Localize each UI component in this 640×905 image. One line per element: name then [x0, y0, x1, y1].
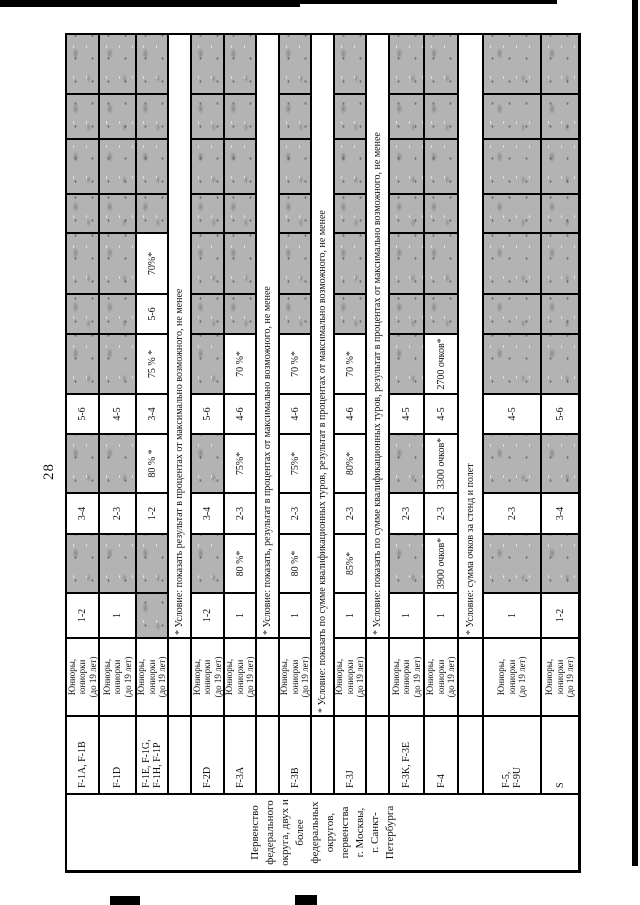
value-cell-f3j-6: 70 %* — [335, 335, 365, 393]
value-cell-s-1: 1-2 — [542, 594, 578, 637]
value-cell-f4-3: 2-3 — [425, 494, 457, 533]
value-cell-f1e-8: 70%* — [137, 234, 167, 293]
value-cell-f1e-7: 5-6 — [137, 295, 167, 333]
model-class-label: F-3A — [235, 717, 246, 788]
shaded-cell-s-4 — [542, 435, 578, 492]
shaded-cell-f1d-8 — [100, 234, 135, 293]
age-group-line: (до 19 лет) — [88, 657, 98, 698]
tournament-level-line: Первенство — [248, 805, 263, 860]
value-cell-f3j-5: 4-6 — [335, 395, 365, 433]
shaded-cell-f3b-11 — [280, 95, 310, 138]
age-group-line: (до 19 лет) — [245, 657, 255, 698]
shaded-cell-f3a-7 — [225, 295, 255, 333]
model-class-label: F-4 — [436, 717, 447, 788]
shaded-cell-f2d-10 — [192, 140, 223, 193]
age-group-line: юниорки — [112, 660, 123, 695]
model-class-cell-f3j: F-3J — [335, 717, 365, 793]
shaded-cell-f3k-4 — [390, 435, 423, 492]
value-cell-f3a-6: 70 %* — [225, 335, 255, 393]
age-group-cell-f4: Юниоры,юниорки(до 19 лет) — [425, 639, 457, 715]
age-group-line: (до 19 лет) — [565, 657, 576, 698]
note-cell-note4: * Условие: показать по сумме квалификаци… — [367, 35, 388, 637]
value-cell-f5-5: 4-5 — [484, 395, 540, 433]
age-group-cell-f1d: Юниоры,юниорки(до 19 лет) — [100, 639, 135, 715]
age-group-line: Юниоры, — [102, 659, 113, 695]
shaded-cell-f5-7 — [484, 295, 540, 333]
age-group-line: Юниоры, — [335, 659, 345, 695]
shaded-cell-f2d-11 — [192, 95, 223, 138]
model-class-cell-f3k: F-3K, F-3E — [390, 717, 423, 793]
tournament-level-line: г. Санкт- — [368, 812, 383, 853]
shaded-cell-f3a-8 — [225, 234, 255, 293]
note-row-class-cell-note5 — [459, 717, 482, 793]
shaded-cell-f1d-7 — [100, 295, 135, 333]
value-cell-f2d-5: 5-6 — [192, 395, 223, 433]
shaded-cell-f5-2 — [484, 535, 540, 592]
shaded-cell-f1a-12 — [67, 35, 98, 93]
age-group-line: Юниоры, — [425, 659, 436, 695]
model-class-label: F-1D — [112, 717, 123, 788]
value-cell-f3a-2: 80 %* — [225, 535, 255, 592]
age-group-cell-s: Юниоры,юниорки(до 19 лет) — [542, 639, 578, 715]
shaded-cell-s-2 — [542, 535, 578, 592]
model-class-label: F-1E, F-1G, — [141, 717, 152, 788]
shaded-cell-f3k-8 — [390, 234, 423, 293]
value-cell-f1e-6: 75 % * — [137, 335, 167, 393]
note-row-class-cell-note2 — [257, 717, 278, 793]
shaded-cell-s-8 — [542, 234, 578, 293]
shaded-cell-f1e-2 — [137, 535, 167, 592]
scan-edge-top-left — [0, 0, 300, 7]
shaded-cell-s-7 — [542, 295, 578, 333]
shaded-cell-f5-8 — [484, 234, 540, 293]
shaded-cell-f1d-11 — [100, 95, 135, 138]
shaded-cell-f3b-12 — [280, 35, 310, 93]
value-cell-f3j-3: 2-3 — [335, 494, 365, 533]
model-class-label: F-1A, F-1B — [77, 717, 88, 788]
value-cell-f3a-1: 1 — [225, 594, 255, 637]
shaded-cell-f3k-6 — [390, 335, 423, 393]
note-row-class-cell-note1 — [169, 717, 190, 793]
shaded-cell-f1d-9 — [100, 195, 135, 232]
model-class-label: F-3K, F-3E — [401, 717, 412, 788]
age-group-cell-f5: Юниоры,юниорки(до 19 лет) — [484, 639, 540, 715]
tournament-level-line: первенства — [338, 807, 353, 859]
shaded-cell-f1a-4 — [67, 435, 98, 492]
shaded-cell-f1d-4 — [100, 435, 135, 492]
model-class-cell-f5: F-5,F-9U — [484, 717, 540, 793]
shaded-cell-f3b-10 — [280, 140, 310, 193]
scan-edge-right — [632, 0, 638, 866]
age-group-line: Юниоры, — [192, 659, 202, 695]
value-cell-f4-4: 3300 очков* — [425, 435, 457, 492]
age-group-line: юниорки — [147, 660, 158, 695]
age-group-line: юниорки — [507, 660, 518, 695]
shaded-cell-f4-12 — [425, 35, 457, 93]
note-row-age-cell-note1 — [169, 639, 190, 715]
shaded-cell-f5-11 — [484, 95, 540, 138]
shaded-cell-f3j-11 — [335, 95, 365, 138]
model-class-label: F-3B — [290, 717, 301, 788]
shaded-cell-f2d-7 — [192, 295, 223, 333]
shaded-cell-f3a-11 — [225, 95, 255, 138]
shaded-cell-f3j-10 — [335, 140, 365, 193]
age-group-cell-f3a: Юниоры,юниорки(до 19 лет) — [225, 639, 255, 715]
value-cell-f3b-1: 1 — [280, 594, 310, 637]
model-class-cell-s: S — [542, 717, 578, 793]
value-cell-f1e-3: 1-2 — [137, 494, 167, 533]
shaded-cell-f3j-7 — [335, 295, 365, 333]
shaded-cell-s-9 — [542, 195, 578, 232]
tournament-level-line: г. Москвы, — [353, 808, 368, 858]
shaded-cell-f1e-9 — [137, 195, 167, 232]
value-cell-f2d-1: 1-2 — [192, 594, 223, 637]
shaded-cell-f4-8 — [425, 234, 457, 293]
shaded-cell-f3j-12 — [335, 35, 365, 93]
age-group-line: юниорки — [290, 660, 301, 695]
age-group-line: (до 19 лет) — [446, 657, 457, 698]
shaded-cell-s-10 — [542, 140, 578, 193]
tournament-level-line: округа, двух и — [278, 799, 293, 866]
tournament-level-line: более — [293, 819, 308, 845]
value-cell-f1a-3: 3-4 — [67, 494, 98, 533]
shaded-cell-f3k-12 — [390, 35, 423, 93]
shaded-cell-f1e-12 — [137, 35, 167, 93]
value-cell-f3k-5: 4-5 — [390, 395, 423, 433]
classification-table: Первенствофедеральногоокруга, двух иболе… — [65, 33, 581, 873]
shaded-cell-f4-9 — [425, 195, 457, 232]
value-cell-f3a-3: 2-3 — [225, 494, 255, 533]
shaded-cell-f4-11 — [425, 95, 457, 138]
shaded-cell-f3k-10 — [390, 140, 423, 193]
shaded-cell-f3k-9 — [390, 195, 423, 232]
value-cell-f3k-1: 1 — [390, 594, 423, 637]
age-group-line: юниорки — [555, 660, 566, 695]
shaded-cell-f2d-9 — [192, 195, 223, 232]
age-group-line: юниорки — [436, 660, 447, 695]
note-row-class-cell-note4 — [367, 717, 388, 793]
shaded-cell-f5-10 — [484, 140, 540, 193]
shaded-cell-f5-4 — [484, 435, 540, 492]
shaded-cell-f1e-10 — [137, 140, 167, 193]
model-class-cell-f1d: F-1D — [100, 717, 135, 793]
value-cell-f1a-5: 5-6 — [67, 395, 98, 433]
shaded-cell-f1e-11 — [137, 95, 167, 138]
shaded-cell-f3k-2 — [390, 535, 423, 592]
shaded-cell-f1a-7 — [67, 295, 98, 333]
shaded-cell-f3a-10 — [225, 140, 255, 193]
value-cell-f4-1: 1 — [425, 594, 457, 637]
shaded-cell-f5-6 — [484, 335, 540, 393]
value-cell-f4-5: 4-5 — [425, 395, 457, 433]
age-group-cell-f3j: Юниоры,юниорки(до 19 лет) — [335, 639, 365, 715]
value-cell-f3j-1: 1 — [335, 594, 365, 637]
model-class-label: F-3J — [345, 717, 356, 788]
model-class-label: F-9U — [512, 717, 523, 788]
page-number: 28 — [41, 463, 58, 480]
scan-edge-top-right — [295, 0, 557, 4]
age-group-line: Юниоры, — [137, 659, 147, 695]
value-cell-f1e-4: 80 % * — [137, 435, 167, 492]
age-group-cell-f1e: Юниоры,юниорки(до 19 лет) — [137, 639, 167, 715]
age-group-cell-f3k: Юниоры,юниорки(до 19 лет) — [390, 639, 423, 715]
shaded-cell-f3b-8 — [280, 234, 310, 293]
shaded-cell-f3j-9 — [335, 195, 365, 232]
shaded-cell-s-11 — [542, 95, 578, 138]
value-cell-s-3: 3-4 — [542, 494, 578, 533]
shaded-cell-f2d-6 — [192, 335, 223, 393]
shaded-cell-f3b-7 — [280, 295, 310, 333]
age-group-cell-f3b: Юниоры,юниорки(до 19 лет) — [280, 639, 310, 715]
model-class-label: F-2D — [202, 717, 213, 788]
shaded-cell-f1d-10 — [100, 140, 135, 193]
age-group-line: Юниоры, — [496, 659, 507, 695]
age-group-line: юниорки — [345, 660, 356, 695]
scan-mark-bottom-1 — [110, 896, 140, 905]
model-class-cell-f3b: F-3B — [280, 717, 310, 793]
model-class-cell-f4: F-4 — [425, 717, 457, 793]
shaded-cell-f4-10 — [425, 140, 457, 193]
age-group-line: Юниоры, — [544, 659, 555, 695]
value-cell-f3j-4: 80%* — [335, 435, 365, 492]
shaded-cell-f3j-8 — [335, 234, 365, 293]
shaded-cell-f1a-9 — [67, 195, 98, 232]
age-group-line: Юниоры, — [67, 659, 77, 695]
shaded-cell-f5-9 — [484, 195, 540, 232]
shaded-cell-s-6 — [542, 335, 578, 393]
note-cell-note1: * Условие: показать результат в процента… — [169, 35, 190, 637]
age-group-line: (до 19 лет) — [412, 657, 423, 698]
note-cell-note2: * Условие: показать, результат в процент… — [257, 35, 278, 637]
shaded-cell-f1a-10 — [67, 140, 98, 193]
model-class-cell-f1e: F-1E, F-1G,F-1H, F-1P — [137, 717, 167, 793]
model-class-label: F-5, — [501, 717, 512, 788]
value-cell-f3b-6: 70 %* — [280, 335, 310, 393]
value-cell-f1d-3: 2-3 — [100, 494, 135, 533]
tournament-level-line: округов, — [323, 813, 338, 852]
shaded-cell-f4-7 — [425, 295, 457, 333]
rotated-table-wrapper: 28 Первенствофедеральногоокруга, двух иб… — [65, 33, 581, 873]
shaded-cell-f1a-11 — [67, 95, 98, 138]
tournament-level-line: Петербурга — [383, 806, 398, 860]
value-cell-f2d-3: 3-4 — [192, 494, 223, 533]
age-group-line: (до 19 лет) — [355, 657, 365, 698]
model-class-label: S — [555, 717, 566, 788]
shaded-cell-f1a-6 — [67, 335, 98, 393]
age-group-line: (до 19 лет) — [157, 657, 167, 698]
shaded-cell-f1a-8 — [67, 234, 98, 293]
tournament-level-cell: Первенствофедеральногоокруга, двух иболе… — [67, 795, 578, 870]
tournament-level-line: федеральных — [308, 801, 323, 863]
age-group-line: (до 19 лет) — [123, 657, 134, 698]
age-group-cell-f2d: Юниоры,юниорки(до 19 лет) — [192, 639, 223, 715]
value-cell-f3j-2: 85%* — [335, 535, 365, 592]
shaded-cell-f1d-12 — [100, 35, 135, 93]
value-cell-s-5: 5-6 — [542, 395, 578, 433]
age-group-line: юниорки — [202, 660, 213, 695]
value-cell-f4-2: 3900 очков* — [425, 535, 457, 592]
shaded-cell-f2d-2 — [192, 535, 223, 592]
value-cell-f3k-3: 2-3 — [390, 494, 423, 533]
age-group-line: юниорки — [235, 660, 246, 695]
shaded-cell-f3k-7 — [390, 295, 423, 333]
shaded-cell-f1a-2 — [67, 535, 98, 592]
value-cell-f1d-1: 1 — [100, 594, 135, 637]
note-row-age-cell-note2 — [257, 639, 278, 715]
shaded-cell-f3k-11 — [390, 95, 423, 138]
note-cell-note3: * Условие: показать по сумме квалификаци… — [312, 35, 333, 715]
value-cell-f4-6: 2700 очков* — [425, 335, 457, 393]
shaded-cell-f1d-6 — [100, 335, 135, 393]
age-group-line: (до 19 лет) — [300, 657, 310, 698]
age-group-line: юниорки — [77, 660, 88, 695]
tournament-level-line: федерального — [263, 800, 278, 864]
model-class-label: F-1H, F-1P — [152, 717, 163, 788]
shaded-cell-f1d-2 — [100, 535, 135, 592]
value-cell-f3a-5: 4-6 — [225, 395, 255, 433]
note-row-age-cell-note5 — [459, 639, 482, 715]
shaded-cell-f3a-12 — [225, 35, 255, 93]
value-cell-f3b-3: 2-3 — [280, 494, 310, 533]
shaded-cell-f5-12 — [484, 35, 540, 93]
age-group-cell-f1a: Юниоры,юниорки(до 19 лет) — [67, 639, 98, 715]
shaded-cell-f2d-8 — [192, 234, 223, 293]
note-cell-note5: * Условие: сумма очков за стенд и полет — [459, 35, 482, 637]
shaded-cell-f2d-4 — [192, 435, 223, 492]
shaded-cell-s-12 — [542, 35, 578, 93]
age-group-line: (до 19 лет) — [517, 657, 528, 698]
shaded-cell-f2d-12 — [192, 35, 223, 93]
note-row-age-cell-note4 — [367, 639, 388, 715]
value-cell-f3b-2: 80 %* — [280, 535, 310, 592]
age-group-line: юниорки — [401, 660, 412, 695]
value-cell-f3b-5: 4-6 — [280, 395, 310, 433]
value-cell-f3a-4: 75%* — [225, 435, 255, 492]
age-group-line: Юниоры, — [391, 659, 402, 695]
value-cell-f1e-5: 3-4 — [137, 395, 167, 433]
model-class-cell-f2d: F-2D — [192, 717, 223, 793]
value-cell-f5-3: 2-3 — [484, 494, 540, 533]
age-group-line: Юниоры, — [280, 659, 290, 695]
age-group-line: Юниоры, — [225, 659, 235, 695]
shaded-cell-f3b-9 — [280, 195, 310, 232]
shaded-cell-f1e-1 — [137, 594, 167, 637]
scanned-document-page: 28 Первенствофедеральногоокруга, двух иб… — [0, 0, 640, 905]
value-cell-f1a-1: 1-2 — [67, 594, 98, 637]
note-row-class-cell-note3 — [312, 717, 333, 793]
value-cell-f1d-5: 4-5 — [100, 395, 135, 433]
scan-mark-bottom-2 — [295, 895, 317, 905]
value-cell-f3b-4: 75%* — [280, 435, 310, 492]
shaded-cell-f3a-9 — [225, 195, 255, 232]
value-cell-f5-1: 1 — [484, 594, 540, 637]
model-class-cell-f1a: F-1A, F-1B — [67, 717, 98, 793]
model-class-cell-f3a: F-3A — [225, 717, 255, 793]
age-group-line: (до 19 лет) — [213, 657, 223, 698]
